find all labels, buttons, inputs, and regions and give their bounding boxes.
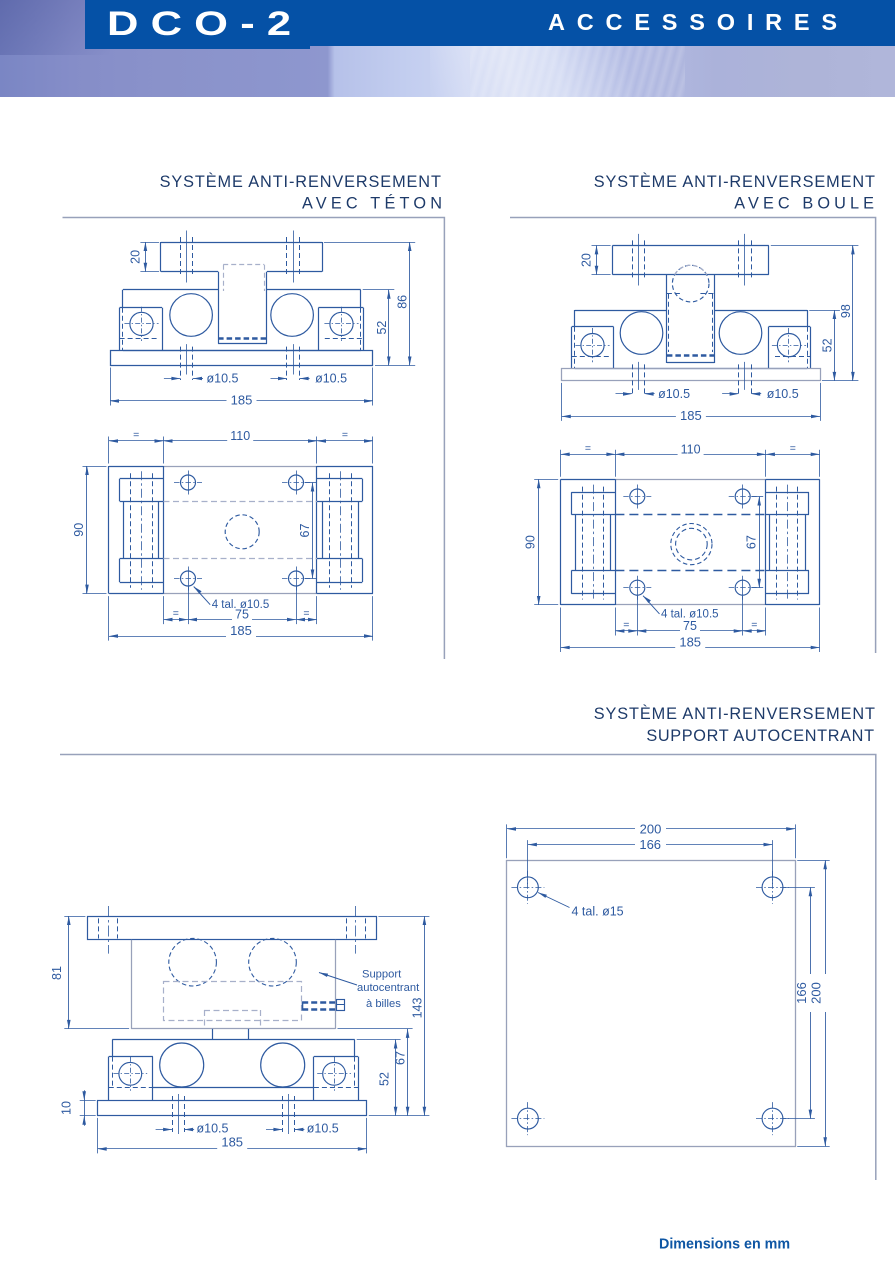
svg-text:200: 200 [640,821,662,836]
svg-text:=: = [133,429,139,441]
svg-text:10: 10 [60,1101,74,1115]
svg-text:Support: Support [362,969,402,981]
svg-text:ø10.5: ø10.5 [767,387,799,401]
svg-text:166: 166 [639,837,661,852]
svg-text:67: 67 [745,535,759,549]
svg-text:=: = [751,619,757,631]
svg-text:4 tal. ø15: 4 tal. ø15 [572,905,624,919]
svg-text:ø10.5: ø10.5 [315,372,347,386]
svg-text:SYSTÈME ANTI-RENVERSEMENT: SYSTÈME ANTI-RENVERSEMENT [160,172,442,191]
svg-text:SUPPORT AUTOCENTRANT: SUPPORT AUTOCENTRANT [646,727,874,745]
svg-text:90: 90 [524,535,538,549]
svg-text:=: = [303,608,309,620]
svg-text:81: 81 [50,966,64,980]
svg-text:185: 185 [230,623,252,638]
svg-text:143: 143 [410,998,424,1019]
svg-text:20: 20 [580,253,594,267]
svg-text:98: 98 [839,304,853,318]
svg-text:AVEC TÉTON: AVEC TÉTON [302,193,446,212]
svg-text:52: 52 [820,338,834,352]
svg-text:52: 52 [375,321,389,335]
svg-text:185: 185 [221,1134,243,1149]
svg-text:=: = [173,608,179,620]
svg-text:SYSTÈME ANTI-RENVERSEMENT: SYSTÈME ANTI-RENVERSEMENT [594,172,876,191]
svg-text:185: 185 [679,635,701,650]
svg-text:110: 110 [230,429,250,443]
svg-text:=: = [342,429,348,441]
svg-text:185: 185 [680,408,702,423]
svg-text:110: 110 [681,442,701,456]
svg-text:ø10.5: ø10.5 [197,1122,229,1136]
svg-text:67: 67 [298,524,312,538]
svg-text:20: 20 [128,250,142,264]
svg-text:4 tal. ø10.5: 4 tal. ø10.5 [661,608,719,620]
svg-text:52: 52 [378,1072,392,1086]
svg-text:185: 185 [231,393,253,408]
svg-text:=: = [790,442,796,454]
svg-text:200: 200 [808,982,823,1004]
svg-text:86: 86 [396,295,410,309]
svg-text:75: 75 [683,619,697,633]
svg-text:4 tal. ø10.5: 4 tal. ø10.5 [212,599,270,611]
svg-text:166: 166 [794,982,809,1004]
svg-text:=: = [623,619,629,631]
svg-text:=: = [585,442,591,454]
svg-text:ø10.5: ø10.5 [207,372,239,386]
svg-text:AVEC BOULE: AVEC BOULE [734,194,878,212]
svg-text:à billes: à billes [366,998,401,1010]
svg-text:autocentrant: autocentrant [357,982,420,994]
svg-text:ø10.5: ø10.5 [307,1122,339,1136]
svg-text:Dimensions en mm: Dimensions en mm [659,1237,790,1253]
svg-text:SYSTÈME ANTI-RENVERSEMENT: SYSTÈME ANTI-RENVERSEMENT [594,704,876,723]
svg-text:67: 67 [394,1051,408,1065]
svg-text:ø10.5: ø10.5 [658,387,690,401]
svg-text:90: 90 [72,523,86,537]
